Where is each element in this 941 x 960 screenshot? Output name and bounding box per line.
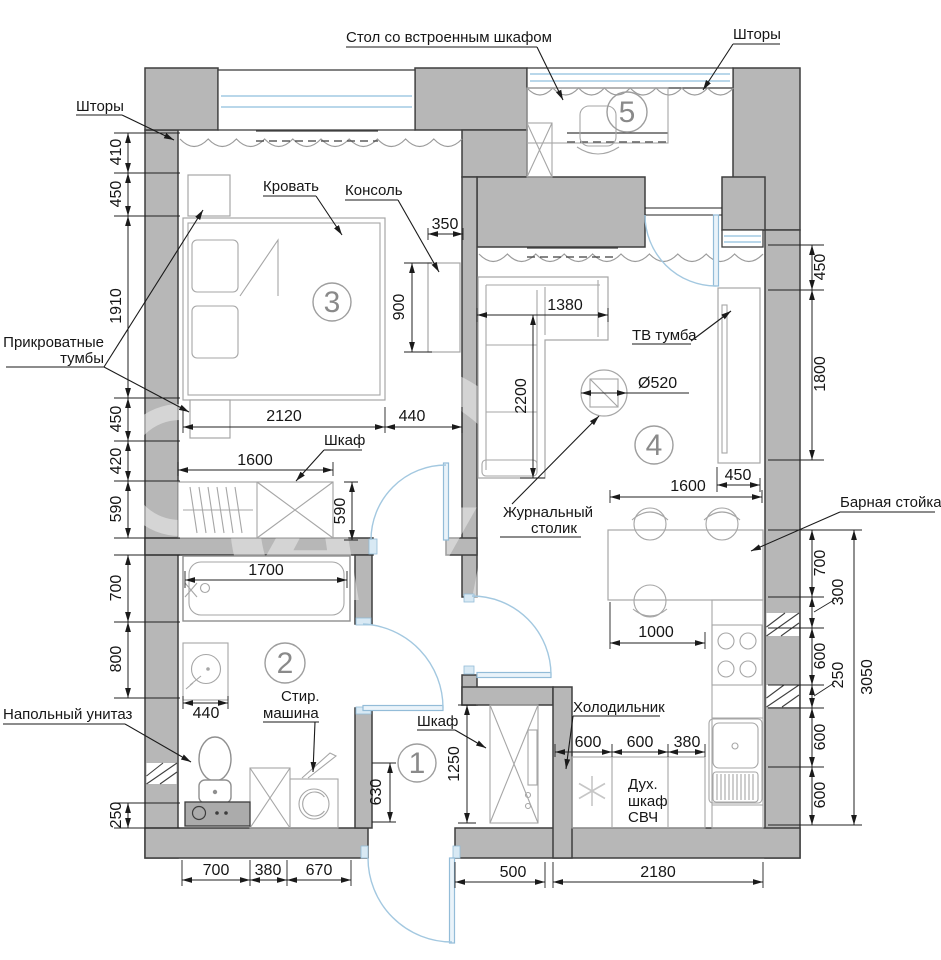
tv-stand xyxy=(718,288,760,463)
wall-bottom-right xyxy=(455,828,800,858)
wall-top-left-corner xyxy=(145,68,218,130)
label-bed: Кровать xyxy=(263,178,319,195)
dim-1600w: 1600 xyxy=(237,452,273,469)
label-fridge: Холодильник xyxy=(573,699,665,716)
bed xyxy=(183,218,385,400)
dim-380b: 380 xyxy=(255,862,282,879)
dim-350: 350 xyxy=(432,216,459,233)
dim-450b: 450 xyxy=(108,406,125,433)
room-1-number: 1 xyxy=(409,747,426,780)
wall-balcony-left xyxy=(462,130,527,177)
label-tv: ТВ тумба xyxy=(632,327,697,344)
wall-right xyxy=(765,230,800,858)
room-2-number: 2 xyxy=(277,647,294,680)
dim-900: 900 xyxy=(391,294,408,321)
dim-250r: 250 xyxy=(830,662,847,689)
dim-590: 590 xyxy=(332,498,349,525)
dim-420: 420 xyxy=(108,448,125,475)
dim-600r3: 600 xyxy=(812,782,829,809)
dim-450: 450 xyxy=(108,181,125,208)
wall-top-mid xyxy=(415,68,527,130)
dim-2180: 2180 xyxy=(640,864,676,881)
label-desk: Стол со встроенным шкафом xyxy=(346,29,552,46)
console-table xyxy=(428,263,460,352)
dim-3050: 3050 xyxy=(859,659,876,695)
label-washer-1: Стир. xyxy=(281,688,320,705)
dim-600r1: 600 xyxy=(812,643,829,670)
toilet xyxy=(199,737,231,803)
floor-plan: Avito xyxy=(0,0,941,960)
label-curtains-left: Шторы xyxy=(76,98,124,115)
room-3-number: 3 xyxy=(324,286,341,319)
label-toilet: Напольный унитаз xyxy=(3,706,133,723)
label-bedside-1: Прикроватные xyxy=(3,334,104,351)
vanity-counter xyxy=(185,802,250,826)
dim-1380: 1380 xyxy=(547,297,583,314)
dim-440sink: 440 xyxy=(193,705,220,722)
label-oven-2: шкаф xyxy=(628,793,668,810)
dim-1250: 1250 xyxy=(446,746,463,782)
bedside-table xyxy=(188,175,230,216)
dim-1700: 1700 xyxy=(248,562,284,579)
dim-600k1: 600 xyxy=(575,734,602,751)
balcony-window xyxy=(527,68,733,88)
dim-450niche: 450 xyxy=(725,467,752,484)
dim-2200: 2200 xyxy=(513,378,530,414)
living-window xyxy=(722,230,763,247)
dim-700r: 700 xyxy=(812,550,829,577)
wall-closet-top xyxy=(462,687,553,705)
label-bedside-2: тумбы xyxy=(60,350,104,367)
dim-500: 500 xyxy=(500,864,527,881)
floor-plan-page: Avito xyxy=(0,0,941,960)
dim-1600bar: 1600 xyxy=(670,478,706,495)
dim-800: 800 xyxy=(108,646,125,673)
dim-1800: 1800 xyxy=(812,356,829,392)
dim-1910: 1910 xyxy=(108,288,125,324)
dim-380k: 380 xyxy=(674,734,701,751)
wall-bottom-left xyxy=(145,828,368,858)
label-oven-1: Дух. xyxy=(628,776,658,793)
label-oven-3: СВЧ xyxy=(628,809,658,826)
wall-bath-right-lower xyxy=(355,708,372,828)
label-bar: Барная стойка xyxy=(840,494,941,511)
room-4-number: 4 xyxy=(646,429,663,462)
dim-590l: 590 xyxy=(108,496,125,523)
bedside-table xyxy=(190,400,230,438)
dim-300: 300 xyxy=(830,579,847,606)
dim-250l: 250 xyxy=(108,802,125,829)
wall-left xyxy=(145,130,178,858)
bedroom-wardrobe xyxy=(178,482,333,538)
dim-410: 410 xyxy=(108,139,125,166)
room-5-number: 5 xyxy=(619,96,636,129)
wall-living-top-right xyxy=(722,177,765,230)
label-washer-2: машина xyxy=(263,705,319,722)
bedroom-window xyxy=(218,70,415,130)
dim-670: 670 xyxy=(306,862,333,879)
dim-450r: 450 xyxy=(812,254,829,281)
wall-living-top xyxy=(477,177,645,247)
dim-700l: 700 xyxy=(108,575,125,602)
dim-table: Ø520 xyxy=(638,375,677,392)
label-wardrobe-bedroom: Шкаф xyxy=(324,432,365,449)
dim-600k2: 600 xyxy=(627,734,654,751)
dim-440bed: 440 xyxy=(399,408,426,425)
dim-700b: 700 xyxy=(203,862,230,879)
dim-630: 630 xyxy=(368,779,385,806)
dim-1000: 1000 xyxy=(638,624,674,641)
label-coffee-1: Журнальный xyxy=(503,504,593,521)
wall-hall-kitchen xyxy=(553,687,572,858)
label-coffee-2: столик xyxy=(531,520,577,537)
label-curtains-right: Шторы xyxy=(733,26,781,43)
dim-600r2: 600 xyxy=(812,724,829,751)
label-console: Консоль xyxy=(345,182,403,199)
dim-2120: 2120 xyxy=(266,408,302,425)
label-wardrobe-hall: Шкаф xyxy=(417,713,458,730)
